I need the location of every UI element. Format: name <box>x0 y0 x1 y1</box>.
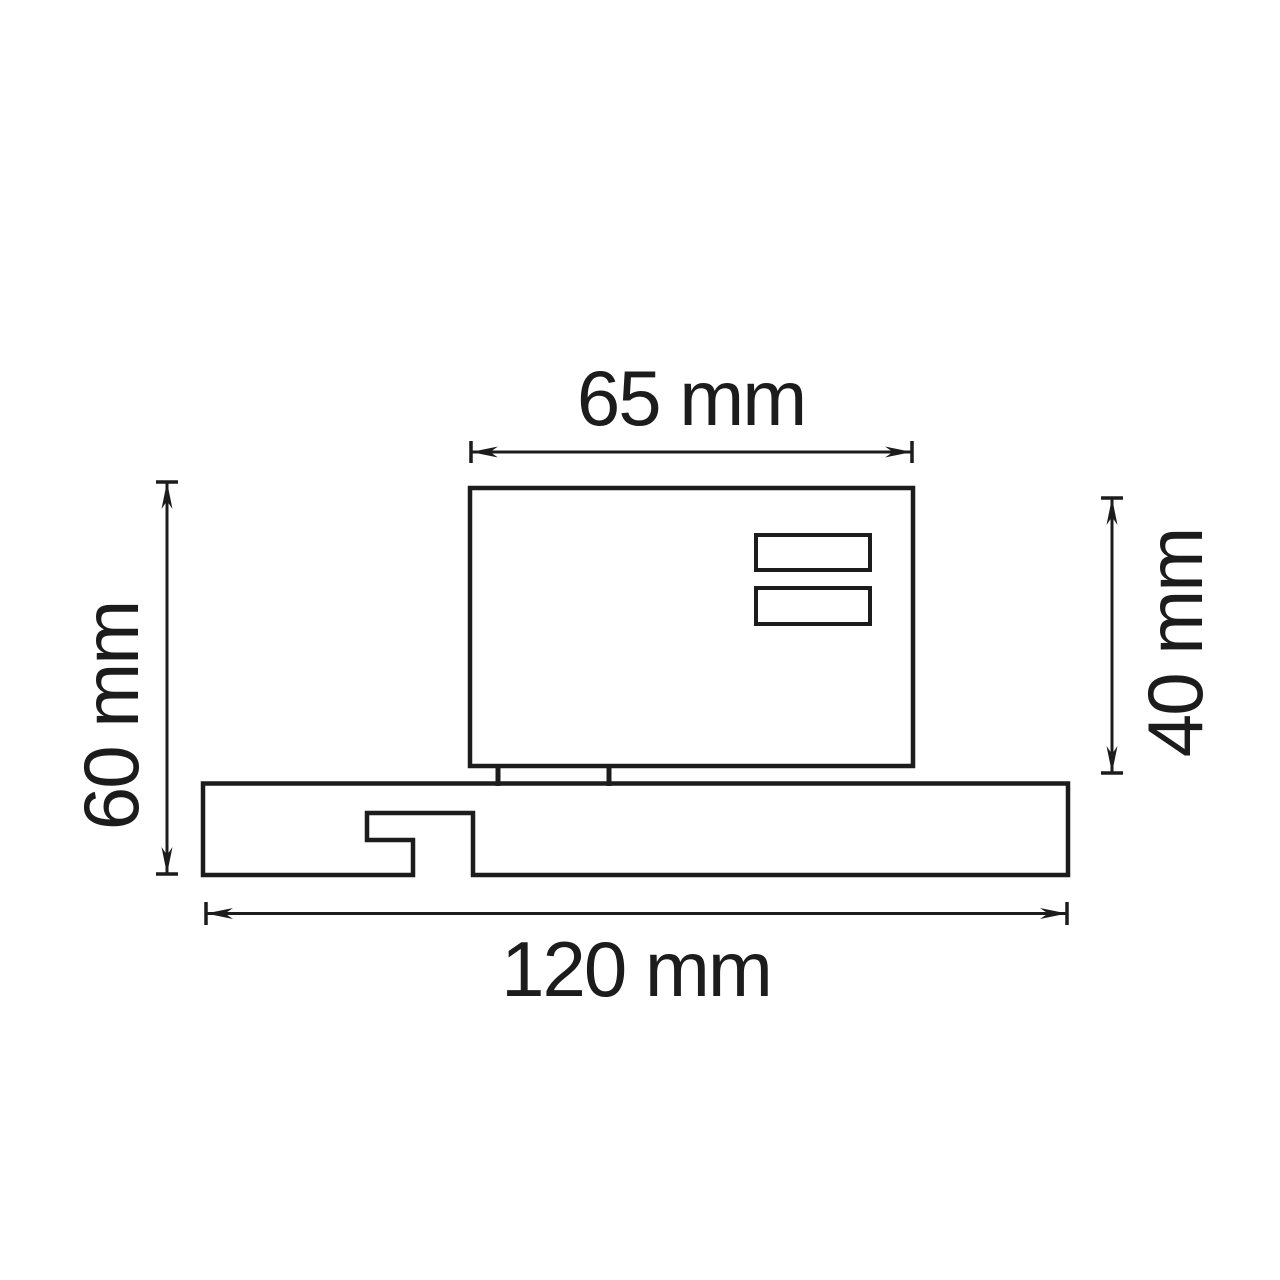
dimension-label-top: 65 mm <box>577 354 805 442</box>
dimension-left-height: 60 mm <box>67 482 178 874</box>
terminal-window-bottom <box>756 588 870 624</box>
dimension-top-width: 65 mm <box>471 354 912 463</box>
dimension-drawing: 65 mm 60 mm 40 mm 120 mm <box>0 0 1280 1280</box>
dimension-label-left: 60 mm <box>67 602 155 830</box>
product-outline <box>203 488 1068 875</box>
dimension-drawing-canvas: 65 mm 60 mm 40 mm 120 mm <box>0 0 1280 1280</box>
dimension-label-right: 40 mm <box>1131 529 1219 757</box>
dimension-bottom-width: 120 mm <box>206 902 1067 1013</box>
track-profile-outline <box>203 784 1068 876</box>
adapter-body-outline <box>470 488 913 766</box>
dimension-label-bottom: 120 mm <box>501 925 771 1013</box>
terminal-window-top <box>756 535 870 570</box>
dimension-right-height: 40 mm <box>1101 498 1219 773</box>
